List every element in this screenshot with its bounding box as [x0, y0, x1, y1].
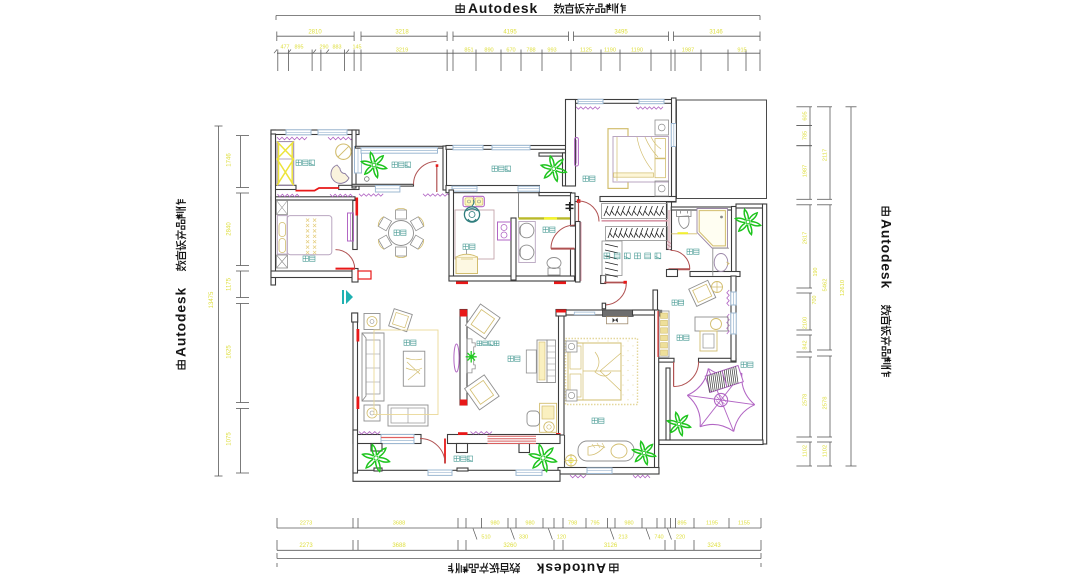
svg-text:3243: 3243: [707, 543, 721, 549]
svg-text:2117: 2117: [823, 149, 829, 161]
svg-text:1625: 1625: [227, 345, 233, 359]
svg-text:3688: 3688: [393, 521, 405, 527]
svg-text:510: 510: [481, 535, 490, 541]
svg-text:1190: 1190: [604, 48, 616, 54]
svg-text:895: 895: [677, 521, 686, 527]
svg-text:842: 842: [803, 340, 809, 349]
svg-text:2273: 2273: [299, 543, 313, 549]
svg-text:890: 890: [484, 48, 493, 54]
svg-text:4195: 4195: [503, 30, 517, 36]
svg-text:330: 330: [519, 535, 528, 541]
svg-text:980: 980: [490, 521, 499, 527]
svg-text:1195: 1195: [706, 521, 718, 527]
svg-text:1102: 1102: [823, 445, 829, 457]
svg-text:220: 220: [676, 535, 685, 541]
svg-text:1987: 1987: [682, 48, 694, 54]
svg-text:788: 788: [526, 48, 535, 54]
svg-text:895: 895: [295, 45, 304, 51]
svg-text:1190: 1190: [631, 48, 643, 54]
svg-text:883: 883: [333, 45, 342, 51]
svg-text:2273: 2273: [300, 521, 312, 527]
svg-text:12610: 12610: [840, 280, 846, 296]
svg-text:Autodesk: Autodesk: [173, 287, 188, 357]
svg-text:1102: 1102: [803, 445, 809, 457]
svg-text:740: 740: [654, 535, 663, 541]
svg-text:700: 700: [812, 296, 818, 305]
svg-text:1987: 1987: [803, 165, 809, 177]
svg-text:1746: 1746: [227, 153, 233, 167]
svg-text:120: 120: [557, 535, 566, 541]
svg-text:605: 605: [803, 111, 809, 120]
svg-text:290: 290: [320, 45, 329, 51]
svg-text:3260: 3260: [503, 543, 517, 549]
svg-text:Autodesk: Autodesk: [468, 1, 538, 16]
svg-text:3146: 3146: [709, 30, 723, 36]
svg-text:145: 145: [353, 45, 362, 51]
svg-text:190: 190: [813, 268, 819, 277]
svg-text:213: 213: [618, 535, 627, 541]
svg-text:13475: 13475: [209, 291, 215, 308]
svg-text:5462: 5462: [823, 279, 829, 292]
svg-text:915: 915: [737, 48, 746, 54]
svg-text:2100: 2100: [803, 317, 809, 329]
svg-text:993: 993: [547, 48, 556, 54]
svg-text:3495: 3495: [614, 30, 628, 36]
svg-text:2840: 2840: [227, 222, 233, 236]
svg-text:3218: 3218: [395, 30, 409, 36]
svg-text:1125: 1125: [580, 48, 592, 54]
svg-text:851: 851: [464, 48, 473, 54]
svg-text:3688: 3688: [392, 543, 406, 549]
svg-text:2578: 2578: [803, 394, 809, 406]
svg-text:798: 798: [568, 521, 577, 527]
svg-text:980: 980: [525, 521, 534, 527]
svg-text:2578: 2578: [823, 397, 829, 410]
svg-text:477: 477: [281, 45, 290, 51]
svg-text:1175: 1175: [227, 277, 233, 291]
svg-text:2810: 2810: [308, 30, 322, 36]
svg-text:2617: 2617: [803, 232, 809, 244]
svg-text:Autodesk: Autodesk: [536, 561, 606, 576]
svg-text:785: 785: [803, 131, 809, 140]
svg-text:3126: 3126: [604, 543, 618, 549]
svg-text:980: 980: [624, 521, 633, 527]
svg-text:1155: 1155: [738, 521, 750, 527]
svg-text:Autodesk: Autodesk: [879, 219, 894, 289]
svg-text:1075: 1075: [227, 432, 233, 446]
svg-text:3219: 3219: [396, 48, 408, 54]
svg-text:795: 795: [590, 521, 599, 527]
svg-text:670: 670: [506, 48, 515, 54]
